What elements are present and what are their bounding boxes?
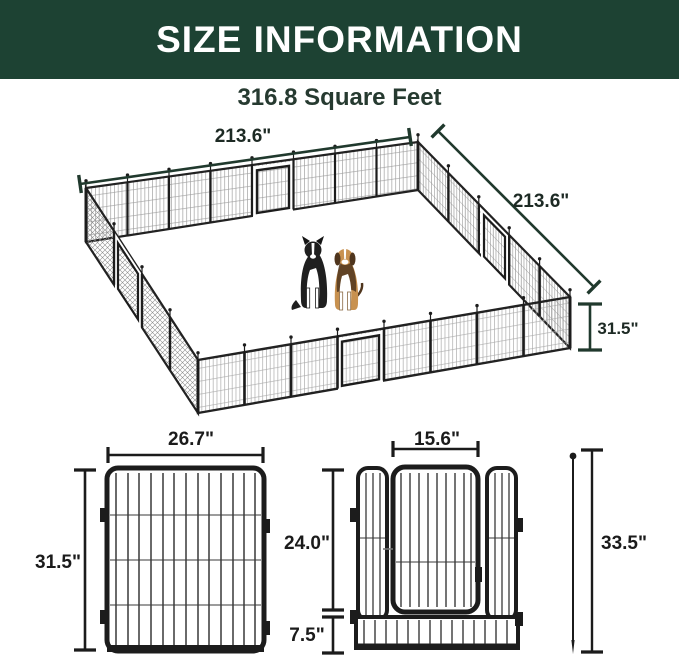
stake-height-label: 33.5" (601, 533, 647, 554)
connector-tab (350, 610, 358, 624)
connector-tab (350, 508, 358, 522)
connector-tab (100, 610, 108, 624)
door-panel-diagram: 15.6" 24.0" 7.5" (284, 429, 523, 653)
connector-tab (515, 612, 523, 626)
playpen-illustration: 213.6" 213.6" 31.5" (0, 112, 679, 425)
solid-panel-width-label: 26.7" (168, 429, 214, 450)
area-subtitle: 316.8 Square Feet (0, 84, 679, 112)
connector-tab (262, 519, 270, 533)
dog-border-collie (292, 236, 328, 310)
pen-right-door (484, 215, 505, 278)
pen-top-width-label: 213.6" (215, 126, 272, 147)
door-bottom-height-label: 7.5" (289, 625, 324, 646)
ground-stake (570, 453, 577, 654)
stake-height-bracket (581, 450, 603, 652)
panel-diagrams: 26.7" 31.5" (0, 425, 679, 655)
connector-tab (262, 621, 270, 635)
solid-panel-height-label: 31.5" (35, 552, 81, 573)
door-upper-height-label: 24.0" (284, 533, 330, 554)
pen-left-door (118, 243, 138, 319)
pen-height-label: 31.5" (597, 319, 638, 338)
solid-panel-diagram: 26.7" 31.5" (35, 429, 270, 651)
size-information-infographic: SIZE INFORMATION 316.8 Square Feet (0, 0, 679, 655)
pen-front-door (342, 335, 379, 386)
dog-beagle (335, 249, 363, 310)
connector-tab (515, 518, 523, 532)
door-height-brackets (322, 470, 344, 653)
pen-side-width-label: 213.6" (513, 191, 570, 212)
door-width-label: 15.6" (414, 429, 460, 450)
header-banner: SIZE INFORMATION (0, 0, 679, 79)
pen-back-door (257, 166, 289, 213)
page-title: SIZE INFORMATION (156, 19, 523, 61)
pen-walls (84, 133, 571, 413)
connector-tab (100, 508, 108, 522)
door-latch (475, 567, 482, 582)
door-gate (383, 467, 482, 612)
